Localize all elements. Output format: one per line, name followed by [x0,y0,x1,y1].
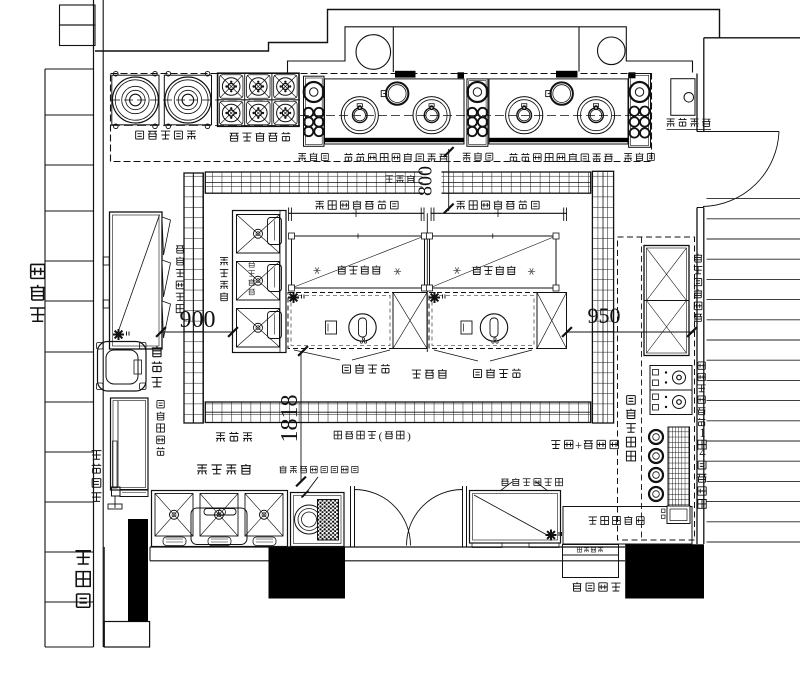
svg-text:900: 900 [180,307,216,333]
svg-text:1818: 1818 [277,395,303,443]
svg-text:800: 800 [415,166,437,196]
svg-text:950: 950 [588,303,621,328]
svg-text:1: 1 [699,426,705,440]
svg-text:+: + [575,438,582,452]
svg-text:): ) [407,430,411,442]
svg-text:(: ( [379,430,383,442]
svg-text:4: 4 [699,446,706,460]
